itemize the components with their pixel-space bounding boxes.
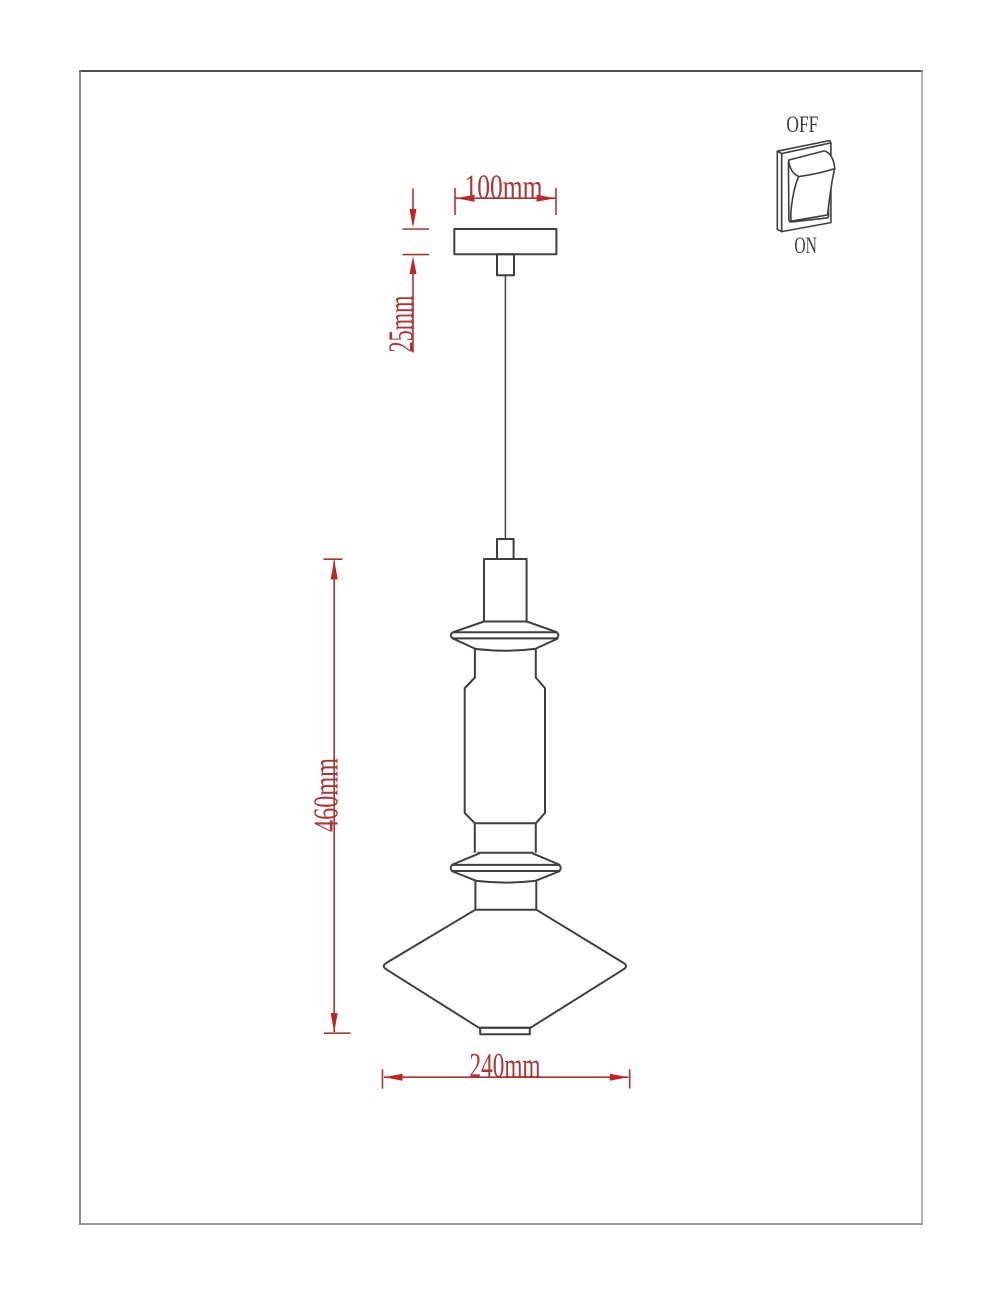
svg-text:OFF: OFF [786, 112, 818, 137]
svg-text:100mm: 100mm [465, 168, 543, 207]
svg-text:ON: ON [794, 233, 817, 258]
svg-text:240mm: 240mm [470, 1046, 541, 1085]
svg-text:460mm: 460mm [307, 758, 346, 832]
svg-text:25mm: 25mm [382, 296, 421, 353]
